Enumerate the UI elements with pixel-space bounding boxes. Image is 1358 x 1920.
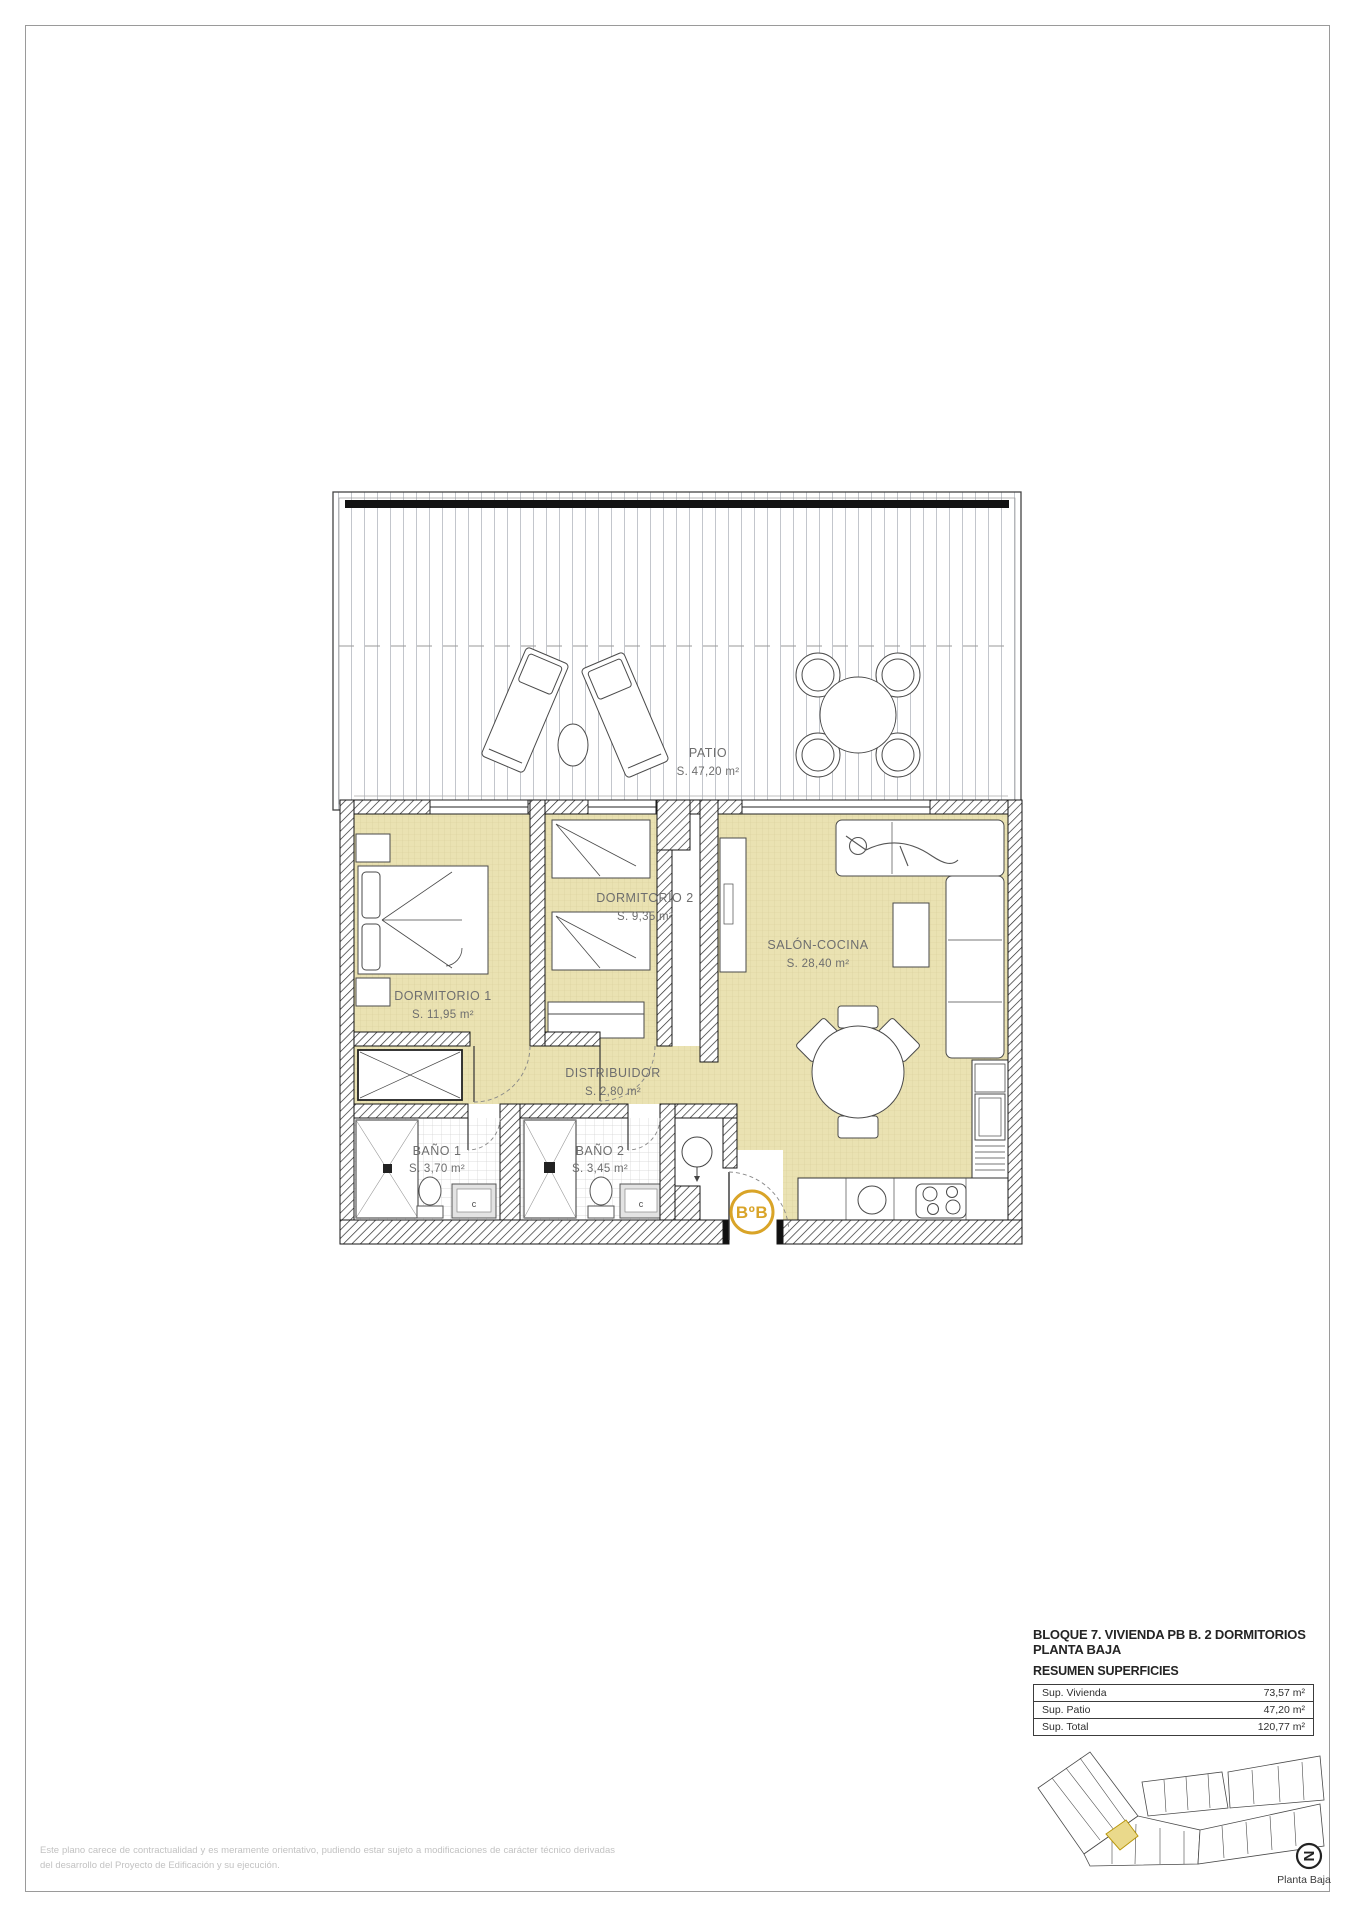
table-row: Sup. Vivienda 73,57 m² — [1034, 1685, 1314, 1702]
partition-wall — [545, 1032, 600, 1046]
summary-heading: RESUMEN SUPERFICIES — [1033, 1664, 1314, 1678]
partition-wall — [675, 1104, 737, 1118]
partition-wall — [354, 1104, 468, 1118]
north-arrow-icon: N — [1297, 1844, 1321, 1868]
shower-icon — [524, 1120, 576, 1218]
partition-wall — [657, 800, 690, 850]
door-jamb — [777, 1220, 783, 1244]
north-glyph: N — [1300, 1851, 1317, 1862]
single-bed-icon — [552, 820, 650, 878]
toilet-icon — [417, 1177, 443, 1218]
bano2-area-label: S. 3,45 m² — [572, 1163, 628, 1175]
site-plan-block — [1142, 1772, 1228, 1816]
salon-cocina-label: SALÓN-COCINA — [767, 937, 868, 952]
partition-wall — [500, 1104, 520, 1220]
partition-wall — [700, 800, 718, 1062]
salon-cocina-area-label: S. 28,40 m² — [787, 958, 850, 970]
side-table-icon — [558, 724, 588, 766]
drawing-sheet: PATIO S. 47,20 m² — [0, 0, 1358, 1920]
dormitorio1-label: DORMITORIO 1 — [394, 989, 491, 1003]
exterior-wall — [340, 800, 354, 1244]
vanity-label: c — [472, 1199, 477, 1209]
distribuidor-area-label: S. 2,80 m² — [585, 1086, 641, 1098]
distribuidor-label: DISTRIBUIDOR — [565, 1066, 661, 1080]
partition-wall — [723, 1118, 737, 1168]
exterior-wall — [783, 1220, 1022, 1244]
dining-table-icon — [812, 1026, 904, 1118]
vanity-icon: c — [452, 1184, 496, 1218]
kitchen-counter-icon — [798, 1178, 1008, 1220]
site-plan-floor-label: Planta Baja — [1277, 1874, 1331, 1886]
patio-area-label: S. 47,20 m² — [677, 766, 740, 778]
partition-wall — [675, 1186, 700, 1220]
bano1-label: BAÑO 1 — [413, 1144, 462, 1158]
plan-floor-title: PLANTA BAJA — [1033, 1642, 1314, 1657]
dormitorio2-label: DORMITORIO 2 — [596, 891, 693, 905]
window-icon — [430, 800, 528, 814]
surface-label: Sup. Total — [1034, 1719, 1191, 1736]
partition-wall — [657, 850, 672, 1046]
dormitorio2-area-label: S. 9,35 m² — [617, 911, 673, 923]
vanity-label: c — [639, 1199, 644, 1209]
coffee-table-icon — [893, 903, 929, 967]
bano1-area-label: S. 3,70 m² — [409, 1163, 465, 1175]
title-block: BLOQUE 7. VIVIENDA PB B. 2 DORMITORIOS P… — [1033, 1627, 1314, 1736]
window-icon — [742, 800, 930, 814]
partition-wall — [530, 800, 545, 1046]
dormitorio1-area-label: S. 11,95 m² — [412, 1009, 474, 1021]
nightstand-icon — [356, 834, 390, 862]
window-icon — [588, 800, 656, 814]
vanity-icon: c — [620, 1184, 662, 1218]
bano2-label: BAÑO 2 — [576, 1144, 625, 1158]
toilet-icon — [588, 1177, 614, 1218]
site-plan: N Planta Baja — [1038, 1752, 1331, 1886]
table-row: Sup. Patio 47,20 m² — [1034, 1702, 1314, 1719]
patio-area: PATIO S. 47,20 m² — [333, 492, 1021, 810]
surface-value: 47,20 m² — [1190, 1702, 1313, 1719]
surface-value: 120,77 m² — [1190, 1719, 1313, 1736]
surface-summary-table: Sup. Vivienda 73,57 m² Sup. Patio 47,20 … — [1033, 1684, 1314, 1736]
site-plan-block — [1228, 1756, 1324, 1808]
cooktop-icon — [916, 1184, 966, 1218]
nightstand-icon — [356, 978, 390, 1006]
double-bed-icon — [358, 866, 488, 974]
partition-wall — [520, 1104, 628, 1118]
patio-top-wall — [345, 500, 1009, 508]
surface-label: Sup. Patio — [1034, 1702, 1191, 1719]
exterior-wall — [340, 1220, 723, 1244]
exterior-wall — [1008, 800, 1022, 1244]
surface-value: 73,57 m² — [1190, 1685, 1313, 1702]
partition-wall — [660, 1104, 675, 1220]
partition-wall — [354, 1032, 470, 1046]
wardrobe-icon — [358, 1050, 462, 1100]
patio-label: PATIO — [689, 746, 727, 760]
disclaimer-text: Este plano carece de contractualidad y e… — [40, 1843, 615, 1873]
chair-icon — [838, 1116, 878, 1138]
kitchen-column-icon — [972, 1060, 1008, 1178]
plan-title: BLOQUE 7. VIVIENDA PB B. 2 DORMITORIOS — [1033, 1627, 1314, 1642]
chair-icon — [838, 1006, 878, 1028]
surface-label: Sup. Vivienda — [1034, 1685, 1191, 1702]
entrance-badge-label: BºB — [736, 1203, 768, 1222]
sink-icon — [858, 1186, 886, 1214]
table-row: Sup. Total 120,77 m² — [1034, 1719, 1314, 1736]
entrance-badge: BºB — [731, 1191, 773, 1233]
door-jamb — [723, 1220, 729, 1244]
